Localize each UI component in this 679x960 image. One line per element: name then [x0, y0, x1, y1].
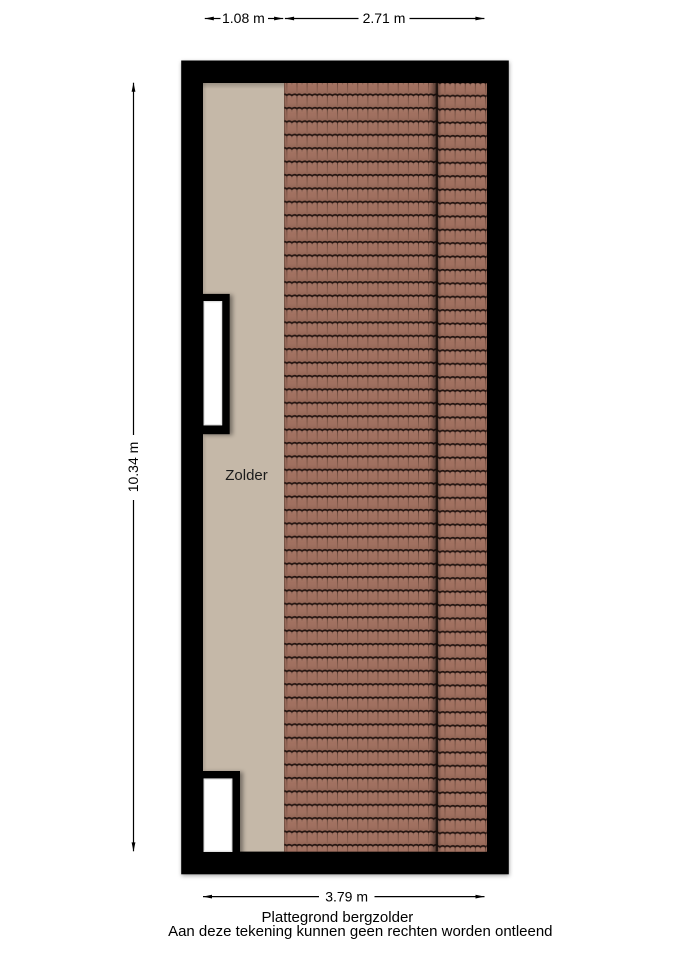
- svg-text:1.08 m: 1.08 m: [222, 10, 265, 26]
- svg-text:3.79 m: 3.79 m: [325, 888, 368, 904]
- svg-text:10.34 m: 10.34 m: [125, 442, 141, 493]
- svg-text:Zolder: Zolder: [225, 467, 268, 484]
- svg-text:2.71 m: 2.71 m: [363, 10, 406, 26]
- svg-text:Aan deze tekening kunnen geen: Aan deze tekening kunnen geen rechten wo…: [168, 923, 552, 940]
